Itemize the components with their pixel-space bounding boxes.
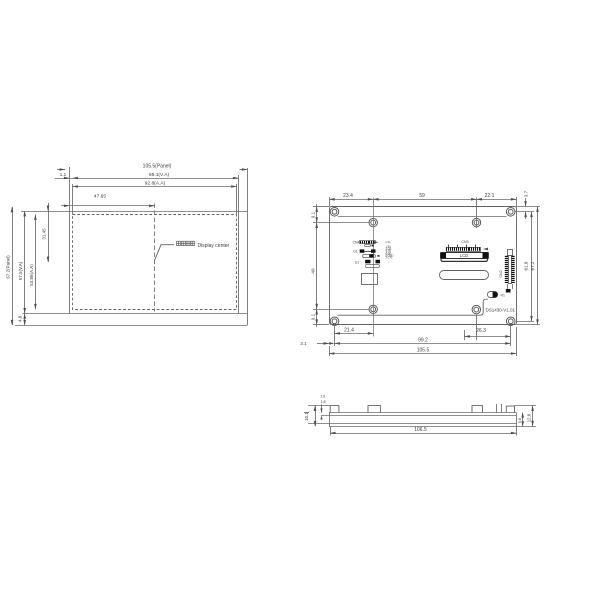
svg-text:LCD: LCD [460,253,469,258]
svg-text:CN4: CN4 [353,241,360,245]
svg-text:1.8: 1.8 [321,400,326,404]
svg-text:CN3: CN3 [461,240,468,244]
svg-text:9.1: 9.1 [311,313,316,320]
svg-text:1.1: 1.1 [60,172,67,177]
svg-text:22.1: 22.1 [485,193,495,199]
svg-text:3.1: 3.1 [300,341,307,346]
svg-text:5.8: 5.8 [517,417,522,423]
svg-text:21.4: 21.4 [344,327,354,333]
svg-text:105.5(Panel): 105.5(Panel) [143,163,172,169]
svg-text:12.6: 12.6 [526,413,531,422]
svg-text:23.4: 23.4 [343,193,353,199]
svg-text:DS1430-V1.01: DS1430-V1.01 [486,308,516,313]
svg-text:95.1(V.A): 95.1(V.A) [149,172,170,178]
svg-text:53.86(A.A): 53.86(A.A) [29,264,34,286]
svg-text:U1: U1 [355,260,359,264]
svg-text:47.65: 47.65 [94,194,107,200]
svg-text:92.8(A.A): 92.8(A.A) [145,181,166,187]
svg-text:67.2: 67.2 [530,261,535,270]
svg-text:10.1: 10.1 [304,412,309,421]
svg-text:31.45: 31.45 [42,228,47,240]
svg-text:4.8: 4.8 [18,315,23,322]
svg-text:CN2: CN2 [499,270,503,277]
svg-text:49: 49 [310,268,315,274]
svg-text:D1: D1 [353,250,357,254]
svg-text:7 CTL: 7 CTL [386,255,394,259]
svg-text:57.5(V.A): 57.5(V.A) [18,261,23,280]
svg-text:1.6: 1.6 [320,395,325,399]
svg-text:9.1: 9.1 [311,211,316,218]
svg-text:R1: R1 [501,293,505,297]
svg-text:105.5: 105.5 [417,348,430,354]
svg-text:26.3: 26.3 [476,328,486,334]
svg-text:59: 59 [419,193,425,199]
svg-text:99.2: 99.2 [418,337,428,343]
svg-text:61.8: 61.8 [524,261,529,270]
svg-text:CTL: CTL [386,240,391,244]
svg-text:Display center: Display center [198,243,230,249]
svg-text:67.2(Panel): 67.2(Panel) [6,255,11,279]
svg-text:106.5: 106.5 [414,427,427,433]
svg-text:3.7: 3.7 [524,190,529,197]
